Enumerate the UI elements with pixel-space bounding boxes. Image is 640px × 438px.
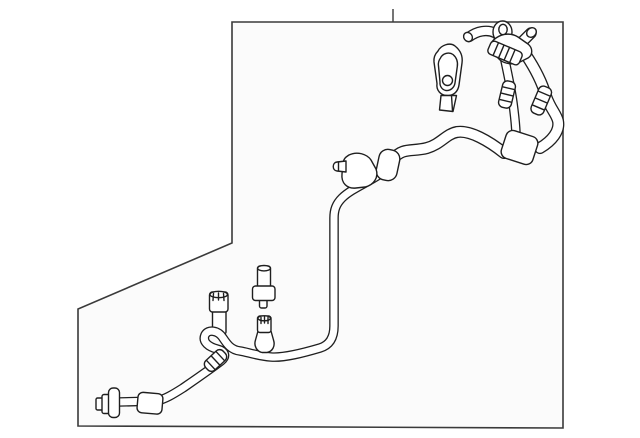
protective-cap-hole	[443, 76, 453, 86]
mount-nipple	[333, 161, 346, 172]
diagram-frame	[78, 22, 563, 428]
end-flange	[109, 388, 120, 418]
protective-cap-body	[434, 44, 462, 95]
bolt-flange	[253, 286, 276, 301]
parts-diagram-page	[0, 0, 640, 438]
crimp-sleeve	[137, 392, 164, 415]
charge-valve-body	[255, 331, 274, 353]
parts-diagram	[0, 0, 640, 438]
bolt-stud-top	[258, 266, 271, 271]
port-knurl-tick-1	[213, 294, 214, 301]
cap-stem-edge	[452, 96, 453, 112]
port-knurl-tick-3	[224, 294, 225, 301]
protective-cap-stem	[440, 96, 457, 112]
